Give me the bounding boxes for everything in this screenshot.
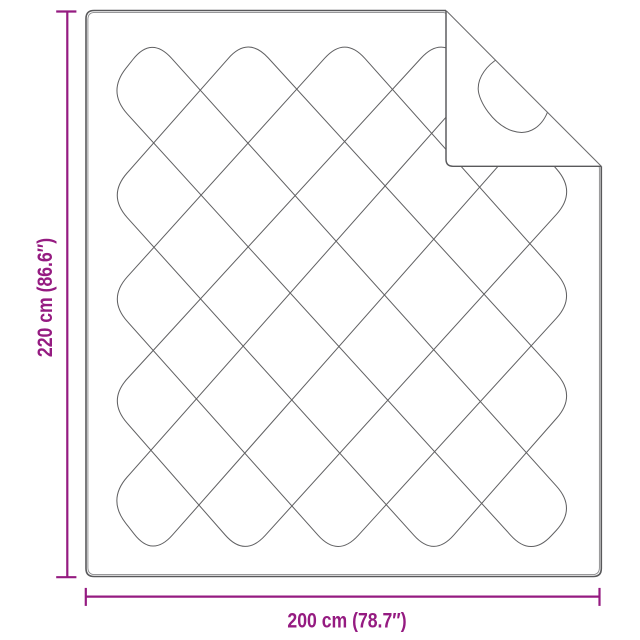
svg-text:200 cm (78.7″): 200 cm (78.7″) — [287, 609, 406, 633]
svg-text:220 cm (86.6″): 220 cm (86.6″) — [33, 238, 57, 357]
